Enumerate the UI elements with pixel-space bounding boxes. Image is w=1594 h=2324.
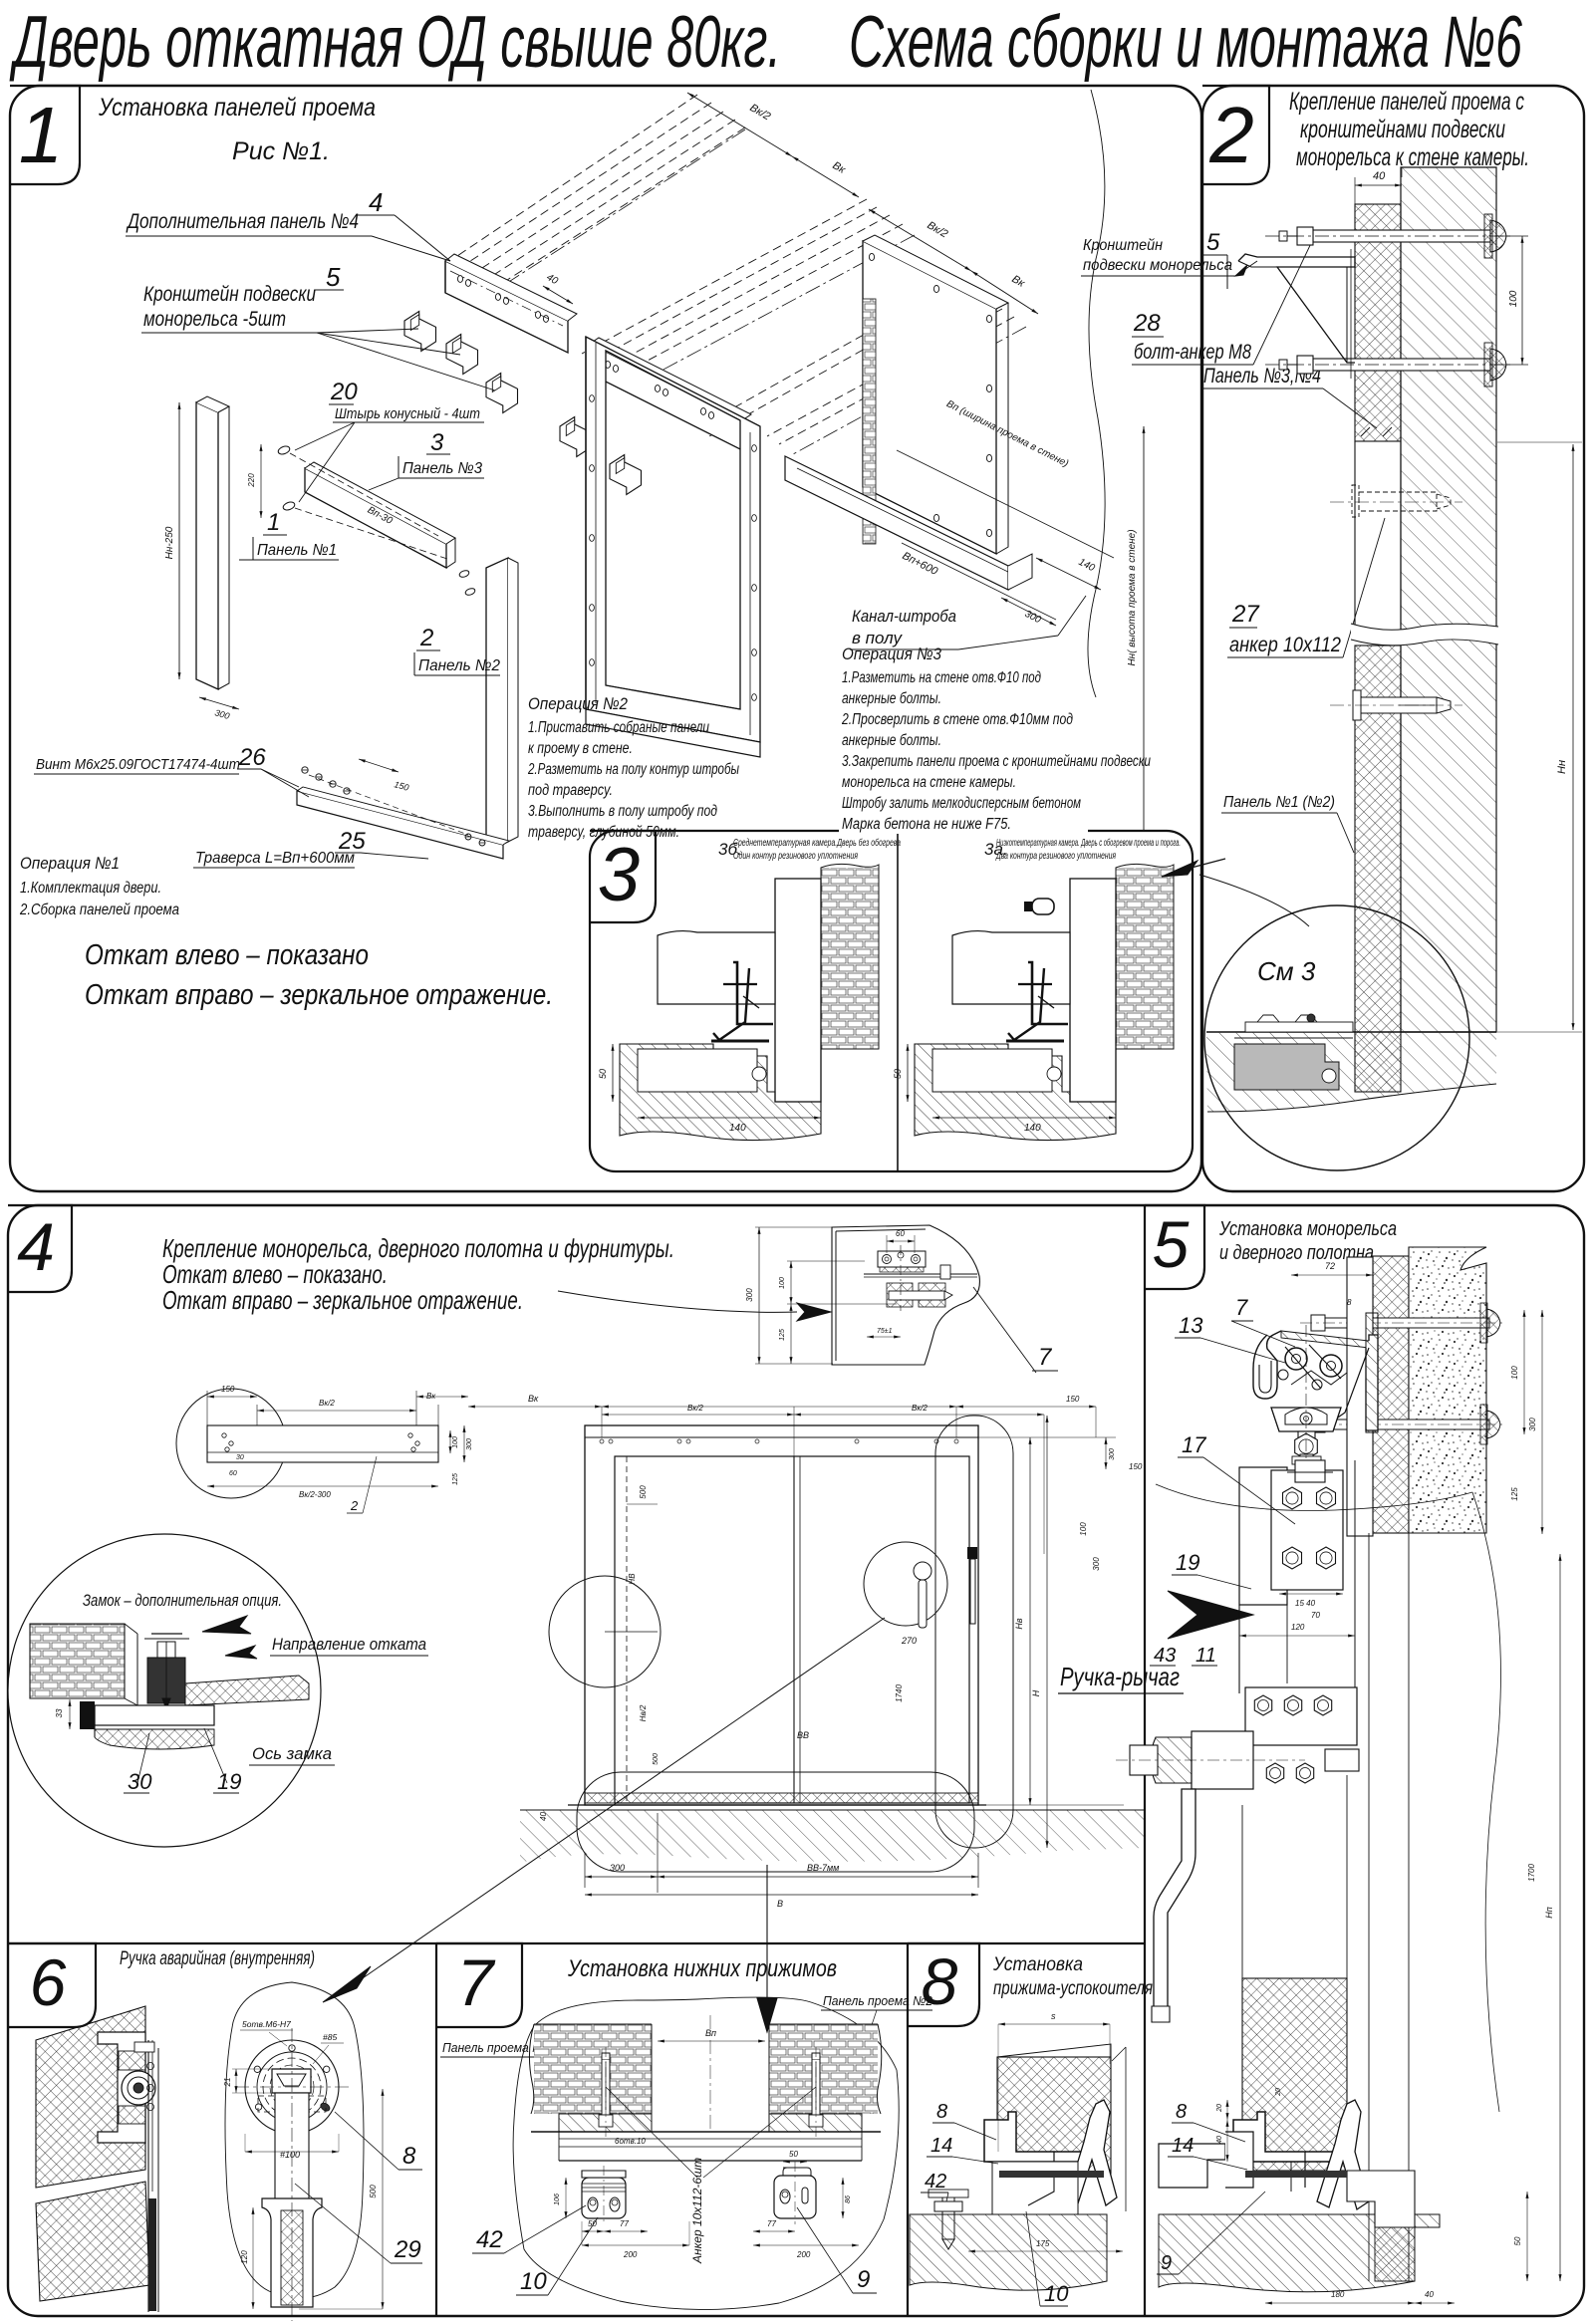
svg-text:7: 7 [457, 1945, 496, 2019]
svg-text:3: 3 [598, 833, 640, 917]
svg-text:1700: 1700 [1527, 1864, 1536, 1882]
svg-text:В: В [777, 1899, 783, 1909]
svg-text:Марка бетона не ниже F75.: Марка бетона не ниже F75. [842, 816, 1011, 833]
svg-text:Вк/2: Вк/2 [319, 1399, 335, 1408]
svg-text:300: 300 [610, 1863, 625, 1873]
svg-text:Кронштейн: Кронштейн [1083, 237, 1163, 254]
svg-text:10: 10 [1044, 2281, 1069, 2306]
svg-text:100: 100 [1079, 1522, 1088, 1536]
svg-text:Вк/2: Вк/2 [912, 1404, 928, 1413]
svg-text:Кронштейн подвески: Кронштейн подвески [143, 283, 316, 306]
svg-text:11: 11 [1195, 1645, 1216, 1667]
svg-text:3.Выполнить в полу штробу под: 3.Выполнить в полу штробу под [528, 803, 717, 820]
svg-text:Вк/2: Вк/2 [687, 1404, 703, 1413]
svg-text:Два контура резинового уплотне: Два контура резинового уплотнения [995, 851, 1116, 862]
svg-text:кронштейнами подвески: кронштейнами подвески [1300, 116, 1505, 143]
svg-text:9: 9 [1161, 2252, 1172, 2274]
svg-text:17: 17 [1182, 1432, 1206, 1457]
svg-text:#85: #85 [323, 2032, 337, 2042]
svg-text:Среднетемпературная камера.Две: Среднетемпературная камера.Дверь без обо… [733, 837, 901, 849]
svg-text:1.Комплектация двери.: 1.Комплектация двери. [20, 880, 161, 897]
svg-text:26: 26 [238, 744, 266, 771]
svg-text:20: 20 [330, 379, 358, 405]
svg-text:5: 5 [1153, 1207, 1190, 1281]
svg-text:Замок – дополнительная опция.: Замок – дополнительная опция. [83, 1591, 282, 1610]
svg-text:Вк/2-300: Вк/2-300 [299, 1490, 331, 1499]
svg-text:Винт М6х25.09ГОСТ17474-4шт: Винт М6х25.09ГОСТ17474-4шт [36, 756, 240, 773]
svg-text:Установка: Установка [992, 1954, 1083, 1975]
svg-text:7: 7 [1235, 1295, 1248, 1320]
svg-text:2.Сборка панелей проема: 2.Сборка панелей проема [19, 902, 179, 918]
svg-text:150: 150 [1066, 1395, 1080, 1404]
svg-text:9: 9 [857, 2266, 870, 2293]
svg-text:200: 200 [623, 2250, 638, 2259]
svg-text:200: 200 [796, 2250, 811, 2259]
svg-text:8: 8 [1176, 2101, 1187, 2123]
svg-text:монорельса -5шт: монорельса -5шт [143, 308, 286, 331]
svg-text:Установка монорельса: Установка монорельса [1218, 1218, 1397, 1240]
svg-text:2: 2 [419, 625, 433, 651]
svg-text:106: 106 [554, 2194, 561, 2205]
svg-text:140: 140 [729, 1123, 746, 1134]
svg-text:7: 7 [1038, 1344, 1053, 1371]
svg-text:125: 125 [1510, 1487, 1519, 1501]
svg-text:300: 300 [745, 1288, 754, 1302]
svg-text:Рис №1.: Рис №1. [232, 137, 330, 165]
svg-text:125: 125 [452, 1473, 459, 1485]
svg-text:Анкер 10х112-6шт: Анкер 10х112-6шт [690, 2158, 704, 2264]
svg-text:Траверса L=Вп+600мм: Траверса L=Вп+600мм [195, 850, 355, 867]
svg-text:40: 40 [1373, 170, 1386, 182]
svg-text:14: 14 [930, 2135, 952, 2157]
svg-text:к проему в стене.: к проему в стене. [528, 740, 633, 757]
svg-text:5: 5 [326, 262, 341, 292]
svg-text:болт-анкер М8: болт-анкер М8 [1134, 341, 1251, 364]
svg-text:180: 180 [1331, 2290, 1345, 2299]
svg-text:10: 10 [520, 2268, 547, 2295]
svg-text:s: s [1051, 2011, 1056, 2021]
svg-text:70: 70 [1311, 1611, 1320, 1620]
svg-text:2.Просверлить в стене отв.Ф10м: 2.Просверлить в стене отв.Ф10мм под [841, 711, 1073, 728]
svg-text:Вк: Вк [528, 1394, 539, 1404]
svg-text:300: 300 [1528, 1418, 1537, 1431]
svg-text:ВВ: ВВ [797, 1730, 809, 1740]
svg-text:Направление отката: Направление отката [272, 1635, 426, 1654]
svg-text:50: 50 [598, 1069, 608, 1079]
svg-text:500: 500 [369, 2185, 378, 2198]
svg-text:500: 500 [653, 1753, 660, 1765]
svg-text:1: 1 [267, 509, 280, 536]
svg-text:См 3: См 3 [1257, 956, 1316, 986]
svg-text:150: 150 [221, 1385, 235, 1394]
svg-text:150: 150 [1129, 1462, 1143, 1471]
svg-text:125: 125 [779, 1329, 786, 1341]
svg-text:Панель №3: Панель №3 [402, 460, 482, 477]
svg-text:86: 86 [845, 2195, 852, 2203]
svg-text:20: 20 [1275, 2088, 1282, 2097]
svg-text:Операция №2: Операция №2 [528, 694, 628, 713]
svg-text:100: 100 [1508, 290, 1519, 307]
svg-text:4: 4 [17, 1209, 55, 1285]
svg-text:40: 40 [1216, 2136, 1223, 2144]
svg-text:Дверь откатная ОД свыше 80кг.: Дверь откатная ОД свыше 80кг. [9, 2, 781, 83]
svg-text:8: 8 [1347, 1298, 1352, 1307]
svg-text:28: 28 [1133, 310, 1161, 337]
svg-text:100: 100 [1510, 1366, 1519, 1380]
svg-text:13: 13 [1179, 1313, 1203, 1338]
svg-text:19: 19 [1176, 1550, 1199, 1575]
svg-text:Нп: Нп [1544, 1907, 1554, 1918]
svg-text:30: 30 [236, 1454, 244, 1461]
svg-text:#100: #100 [280, 2150, 300, 2160]
svg-text:100: 100 [452, 1436, 459, 1448]
svg-text:5отв.М6-Н7: 5отв.М6-Н7 [242, 2019, 291, 2029]
svg-text:20: 20 [1216, 2104, 1223, 2113]
svg-text:77: 77 [767, 2219, 776, 2228]
svg-text:Откат вправо – зеркальное отра: Откат вправо – зеркальное отражение. [162, 1285, 523, 1315]
svg-text:2: 2 [1208, 91, 1254, 179]
svg-text:Панель №1 (№2): Панель №1 (№2) [1223, 794, 1335, 811]
svg-text:прижима-успокоителя: прижима-успокоителя [993, 1978, 1153, 1999]
svg-text:300: 300 [1092, 1557, 1101, 1571]
svg-text:40: 40 [1425, 2290, 1434, 2299]
svg-text:100: 100 [779, 1277, 786, 1289]
svg-text:50: 50 [1513, 2236, 1522, 2245]
svg-text:Установка нижних прижимов: Установка нижних прижимов [567, 1955, 837, 1982]
svg-text:43: 43 [1154, 1645, 1176, 1667]
svg-text:5: 5 [1206, 229, 1220, 256]
svg-text:27: 27 [1231, 601, 1260, 628]
svg-text:25: 25 [338, 828, 366, 855]
svg-text:50: 50 [789, 2150, 798, 2159]
svg-text:1: 1 [19, 91, 64, 179]
svg-text:6: 6 [30, 1945, 67, 2019]
svg-text:траверсу, глубиной 50мм.: траверсу, глубиной 50мм. [528, 824, 679, 841]
svg-text:175: 175 [1036, 2239, 1050, 2248]
svg-text:140: 140 [1024, 1123, 1041, 1134]
svg-text:8: 8 [402, 2143, 416, 2170]
svg-text:42: 42 [476, 2226, 503, 2253]
svg-text:60: 60 [229, 1470, 237, 1477]
svg-text:1.Разметить на стене отв.Ф10 п: 1.Разметить на стене отв.Ф10 под [842, 669, 1041, 686]
svg-text:анкерные болты.: анкерные болты. [842, 690, 941, 707]
svg-text:Панель №2: Панель №2 [418, 657, 500, 674]
svg-text:77: 77 [620, 2219, 629, 2228]
svg-text:40: 40 [539, 1812, 548, 1821]
svg-text:6отв.10: 6отв.10 [615, 2137, 646, 2146]
svg-text:75±1: 75±1 [877, 1328, 893, 1335]
svg-text:500: 500 [639, 1485, 648, 1499]
svg-text:Hн( высота проема в стене): Hн( высота проема в стене) [1127, 529, 1138, 665]
svg-text:Установка панелей проема: Установка панелей проема [98, 94, 376, 122]
svg-text:Hн: Hн [1556, 760, 1568, 774]
svg-text:220: 220 [247, 473, 256, 488]
svg-text:2.Разметить на полу контур штр: 2.Разметить на полу контур штробы [527, 761, 739, 778]
svg-text:21: 21 [223, 2078, 232, 2088]
svg-text:Нв/2: Нв/2 [639, 1704, 648, 1721]
svg-text:42: 42 [925, 2171, 946, 2193]
svg-text:анкер 10х112: анкер 10х112 [1229, 634, 1341, 656]
svg-text:Откат вправо – зеркальное отра: Откат вправо – зеркальное отражение. [85, 979, 553, 1011]
svg-text:19: 19 [217, 1769, 241, 1794]
svg-text:Низкотемпературная камера. Две: Низкотемпературная камера. Дверь с обогр… [996, 837, 1181, 849]
svg-text:Крепление панелей проема с: Крепление панелей проема с [1289, 88, 1524, 116]
svg-text:60: 60 [896, 1229, 905, 1238]
svg-text:3: 3 [430, 429, 444, 456]
svg-text:1740: 1740 [895, 1684, 904, 1702]
svg-text:8: 8 [936, 2101, 947, 2123]
svg-text:1.Приставить собраные панели: 1.Приставить собраные панели [528, 719, 709, 736]
svg-text:4: 4 [369, 187, 383, 217]
svg-text:33: 33 [55, 1708, 64, 1717]
svg-text:Схема сборки и монтажа №6: Схема сборки и монтажа №6 [849, 2, 1522, 83]
svg-text:в полу: в полу [852, 629, 903, 647]
svg-text:2: 2 [350, 1498, 359, 1513]
svg-text:Откат влево – показано: Откат влево – показано [85, 939, 369, 971]
svg-text:Нв: Нв [1014, 1618, 1024, 1629]
svg-text:72: 72 [1325, 1261, 1335, 1271]
svg-text:Один контур резинового уплотне: Один контур резинового уплотнения [733, 851, 858, 862]
svg-text:анкерные болты.: анкерные болты. [842, 732, 941, 749]
svg-text:300: 300 [466, 1438, 473, 1450]
svg-text:Н: Н [1031, 1689, 1041, 1696]
svg-text:Hн-250: Hн-250 [164, 526, 175, 559]
svg-text:29: 29 [394, 2236, 421, 2263]
svg-text:Вк: Вк [426, 1392, 436, 1401]
svg-text:Панель проема №2: Панель проема №2 [823, 1993, 933, 2008]
svg-text:50: 50 [893, 1069, 903, 1079]
svg-text:Ручка аварийная (внутренняя): Ручка аварийная (внутренняя) [120, 1948, 315, 1969]
svg-text:Штырь конусный - 4шт: Штырь конусный - 4шт [335, 406, 480, 422]
svg-text:Ось замка: Ось замка [252, 1744, 332, 1763]
svg-text:под траверсу.: под траверсу. [528, 782, 613, 799]
svg-text:300: 300 [1109, 1448, 1116, 1460]
svg-text:Штробу залить мелкодисперсным: Штробу залить мелкодисперсным бетоном [842, 795, 1081, 812]
svg-text:14: 14 [1172, 2135, 1194, 2157]
svg-text:подвески монорельса: подвески монорельса [1083, 257, 1232, 274]
svg-text:120: 120 [1291, 1623, 1305, 1632]
svg-text:Панель №1: Панель №1 [257, 542, 337, 559]
svg-text:Операция №1: Операция №1 [20, 854, 120, 873]
svg-text:3.Закрепить панели проема с кр: 3.Закрепить панели проема с кронштейнами… [842, 753, 1151, 770]
svg-text:120: 120 [240, 2250, 249, 2264]
svg-text:270: 270 [901, 1636, 917, 1646]
svg-text:15 40: 15 40 [1295, 1599, 1316, 1608]
svg-text:Вп: Вп [705, 2028, 716, 2038]
svg-text:Дополнительная панель №4: Дополнительная панель №4 [126, 210, 359, 233]
svg-text:ВВ-7мм: ВВ-7мм [807, 1863, 839, 1873]
svg-text:монорельса на стене камеры.: монорельса на стене камеры. [842, 774, 1016, 791]
svg-text:Канал-штроба: Канал-штроба [852, 607, 956, 626]
